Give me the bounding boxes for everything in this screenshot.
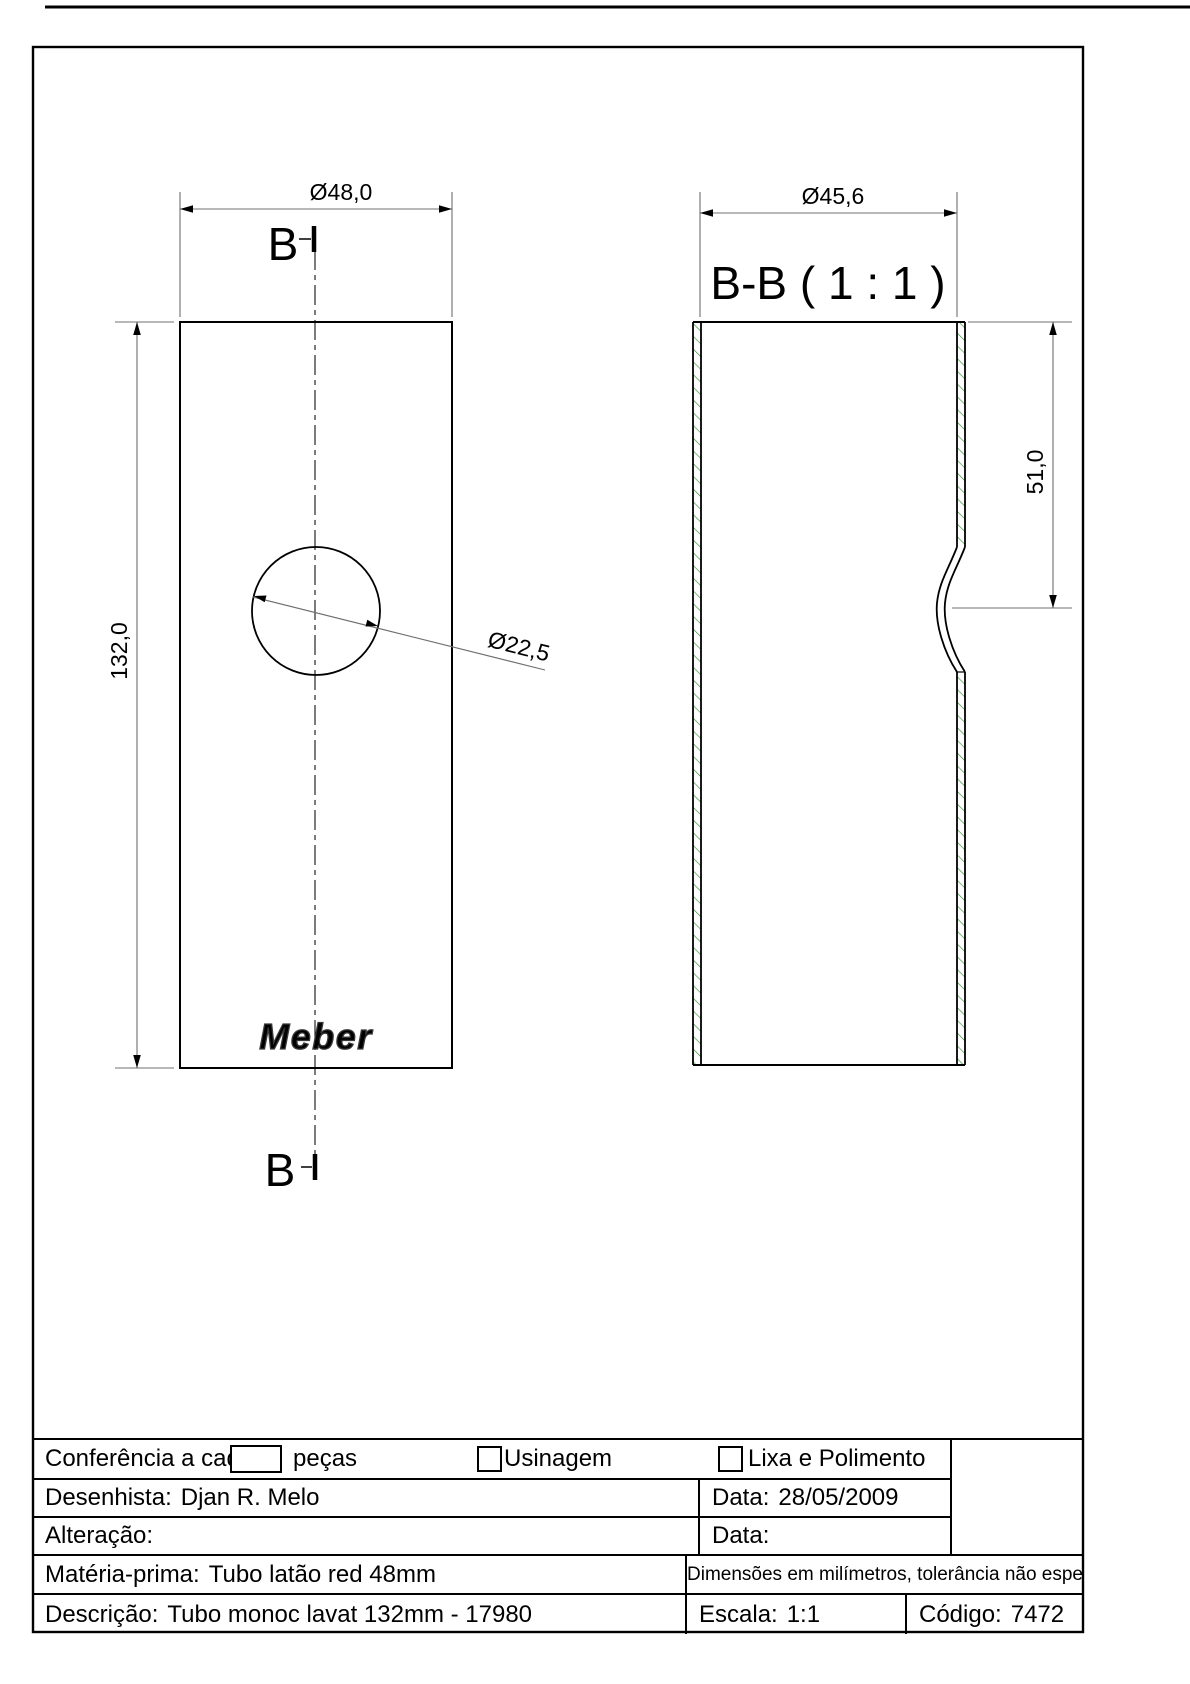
right-wall-hatch-lower [957, 672, 965, 1065]
lixa-label: Lixa e Polimento [748, 1440, 925, 1478]
section-view-title: B-B ( 1 : 1 ) [710, 257, 945, 309]
arrowhead [1049, 595, 1057, 608]
right-wall-hatch-upper [957, 322, 965, 547]
desenhista-value: Djan R. Melo [181, 1484, 320, 1512]
escala-label: Escala: [699, 1601, 778, 1629]
data1-label: Data: [712, 1484, 769, 1512]
front-width-dim-text: Ø48,0 [310, 179, 373, 205]
pecas-label: peças [293, 1440, 357, 1478]
titleblock-cell-escala: Escala: 1:1 [685, 1595, 905, 1634]
codigo-value: 7472 [1011, 1601, 1064, 1629]
descricao-label: Descrição: [45, 1601, 158, 1629]
neck-inner-curve [937, 547, 957, 672]
tube-front-outline [180, 322, 452, 1068]
titleblock-row-alteracao: Alteração: [33, 1518, 698, 1556]
arrowhead [133, 322, 141, 335]
front-view: Ø48,0 132,0 Ø22,5 B [106, 179, 552, 1196]
arrowhead [700, 209, 713, 217]
section-width-dim-text: Ø45,6 [802, 183, 865, 209]
usinagem-label: Usinagem [504, 1440, 612, 1478]
materia-value: Tubo latão red 48mm [209, 1561, 436, 1589]
codigo-label: Código: [919, 1601, 1002, 1629]
titleblock-empty-cell [950, 1440, 1083, 1556]
dim-front-width [180, 192, 452, 317]
lixa-checkbox [718, 1446, 743, 1472]
titleblock-row-conferencia: Conferência a cada peças Usinagem Lixa e… [33, 1440, 950, 1480]
arrowhead [944, 209, 957, 217]
usinagem-checkbox [477, 1446, 502, 1472]
titleblock-row-desenhista: Desenhista: Djan R. Melo [33, 1480, 698, 1518]
meber-logo: Meber [259, 1016, 373, 1057]
conferencia-qty-box [230, 1445, 282, 1473]
arrowhead [133, 1055, 141, 1068]
neck-dim-text: 51,0 [1022, 450, 1048, 495]
data2-label: Data: [712, 1522, 769, 1550]
desenhista-label: Desenhista: [45, 1484, 172, 1512]
arrowhead [1049, 322, 1057, 335]
arrowhead [180, 205, 193, 213]
section-letter-top: B [268, 218, 299, 270]
materia-label: Matéria-prima: [45, 1561, 200, 1589]
technical-drawing-canvas: Ø48,0 132,0 Ø22,5 B [0, 0, 1190, 1684]
titleblock-cell-tolerance: Dimensões em milímetros, tolerância não … [685, 1556, 1083, 1595]
titleblock-cell-codigo: Código: 7472 [905, 1595, 1083, 1634]
tube-section-outline [693, 322, 965, 1065]
titleblock-row-descricao: Descrição: Tubo monoc lavat 132mm - 1798… [33, 1595, 685, 1634]
titleblock-cell-data1: Data: 28/05/2009 [698, 1480, 950, 1518]
section-view: Ø45,6 B-B ( 1 : 1 ) 51,0 [693, 183, 1072, 1065]
titleblock-cell-data2: Data: [698, 1518, 950, 1556]
dim-front-height [115, 322, 174, 1068]
titleblock-row-materia: Matéria-prima: Tubo latão red 48mm [33, 1556, 685, 1595]
arrowhead [439, 205, 452, 213]
escala-value: 1:1 [787, 1601, 820, 1629]
drawing-sheet: Ø48,0 132,0 Ø22,5 B [0, 0, 1190, 1684]
descricao-value: Tubo monoc lavat 132mm - 17980 [167, 1601, 532, 1629]
section-letter-bottom: B [265, 1144, 296, 1196]
dim-neck-depth [952, 322, 1072, 608]
conferencia-label: Conferência a cada [45, 1440, 253, 1478]
section-mark-top [299, 226, 314, 252]
title-block: Conferência a cada peças Usinagem Lixa e… [33, 1438, 1083, 1632]
section-mark-bottom [301, 1154, 315, 1180]
left-wall-hatch [693, 322, 701, 1065]
tolerance-note: Dimensões em milímetros, tolerância não … [687, 1564, 1083, 1586]
hole-dim-text: Ø22,5 [485, 626, 552, 666]
front-height-dim-text: 132,0 [106, 622, 132, 680]
alteracao-label: Alteração: [45, 1522, 153, 1550]
data1-value: 28/05/2009 [778, 1484, 898, 1512]
